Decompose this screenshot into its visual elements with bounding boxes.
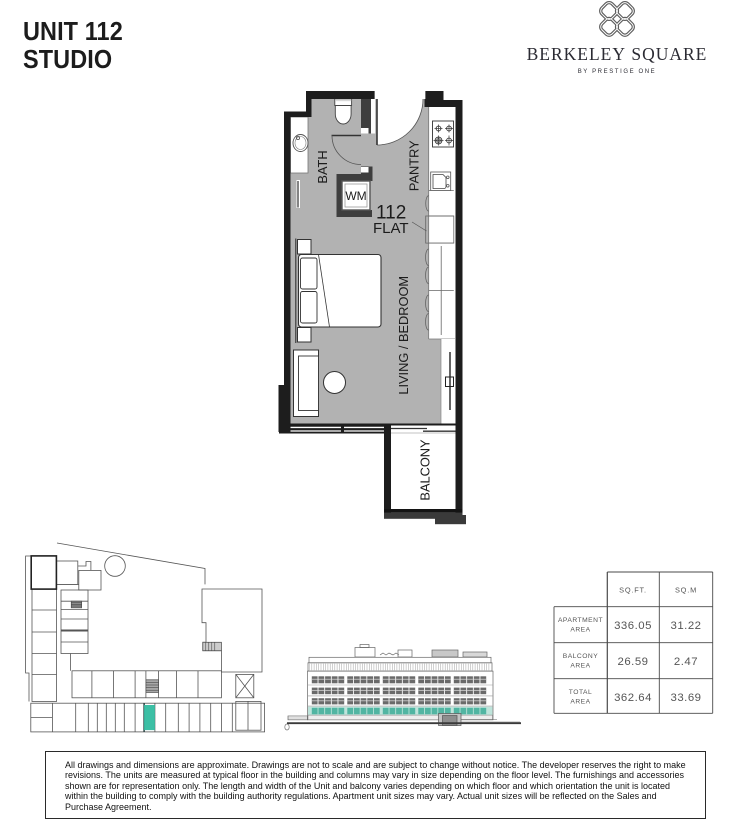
svg-text:AREA: AREA: [570, 699, 590, 706]
svg-text:362.64: 362.64: [614, 692, 652, 704]
svg-text:33.69: 33.69: [670, 692, 701, 704]
svg-text:26.59: 26.59: [617, 656, 648, 668]
svg-text:TOTAL: TOTAL: [569, 689, 592, 696]
svg-text:AREA: AREA: [570, 663, 590, 670]
svg-text:336.05: 336.05: [614, 620, 652, 632]
svg-text:31.22: 31.22: [670, 620, 701, 632]
svg-text:2.47: 2.47: [674, 656, 698, 668]
svg-text:AREA: AREA: [570, 627, 590, 634]
svg-text:SQ.FT.: SQ.FT.: [619, 586, 647, 595]
svg-text:APARTMENT: APARTMENT: [558, 617, 603, 624]
svg-text:BALCONY: BALCONY: [563, 653, 599, 660]
svg-text:SQ.M: SQ.M: [675, 586, 697, 595]
